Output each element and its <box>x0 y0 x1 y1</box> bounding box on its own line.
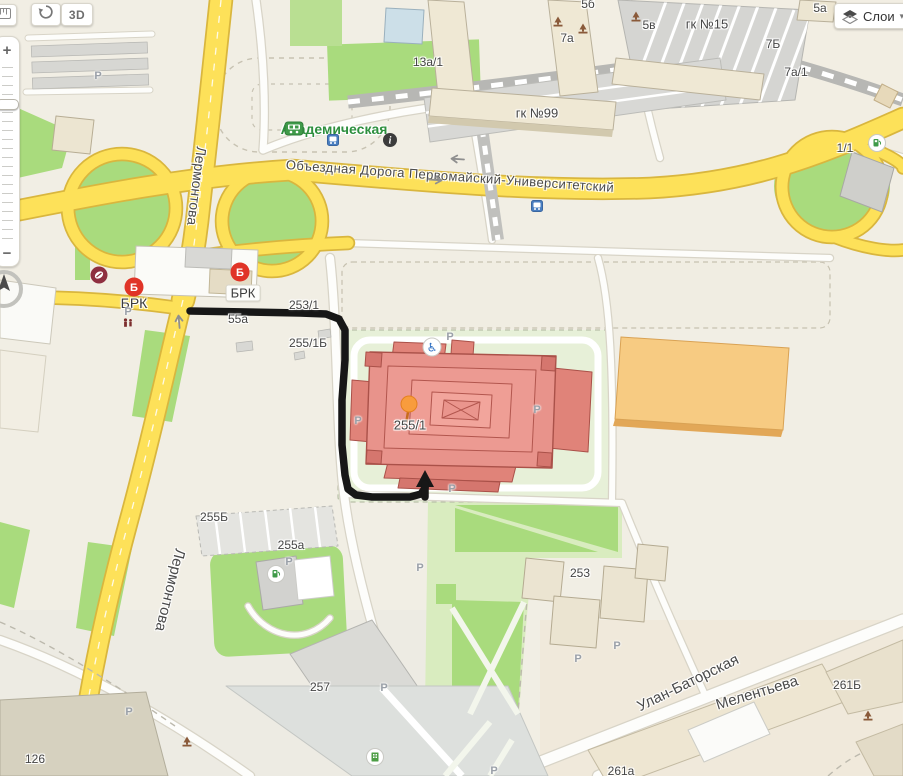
zoom-out-button[interactable]: − <box>0 243 19 263</box>
chevron-down-icon: ▾ <box>900 11 903 22</box>
layers-icon <box>842 9 858 24</box>
zoom-handle[interactable] <box>0 99 19 110</box>
ruler-icon <box>0 6 11 24</box>
rotate-view-icon <box>38 4 54 25</box>
zoom-in-button[interactable]: + <box>0 40 19 60</box>
layers-label: Слои <box>863 9 895 24</box>
tilt-view-button[interactable] <box>31 3 61 26</box>
map-render <box>0 0 903 776</box>
3d-label: 3D <box>69 8 85 22</box>
orange-building[interactable] <box>613 337 789 437</box>
ruler-button[interactable] <box>0 4 17 26</box>
compass-north-icon <box>0 297 25 314</box>
zoom-scale[interactable] <box>2 67 13 239</box>
layers-button[interactable]: Слои ▾ <box>834 3 903 29</box>
zoom-slider: + − <box>0 36 20 267</box>
compass-control[interactable] <box>0 268 25 310</box>
3d-button[interactable]: 3D <box>61 3 93 26</box>
map-viewport[interactable]: 13а/17а5в5бгк №157Б7а/15агк №991/1Академ… <box>0 0 903 776</box>
